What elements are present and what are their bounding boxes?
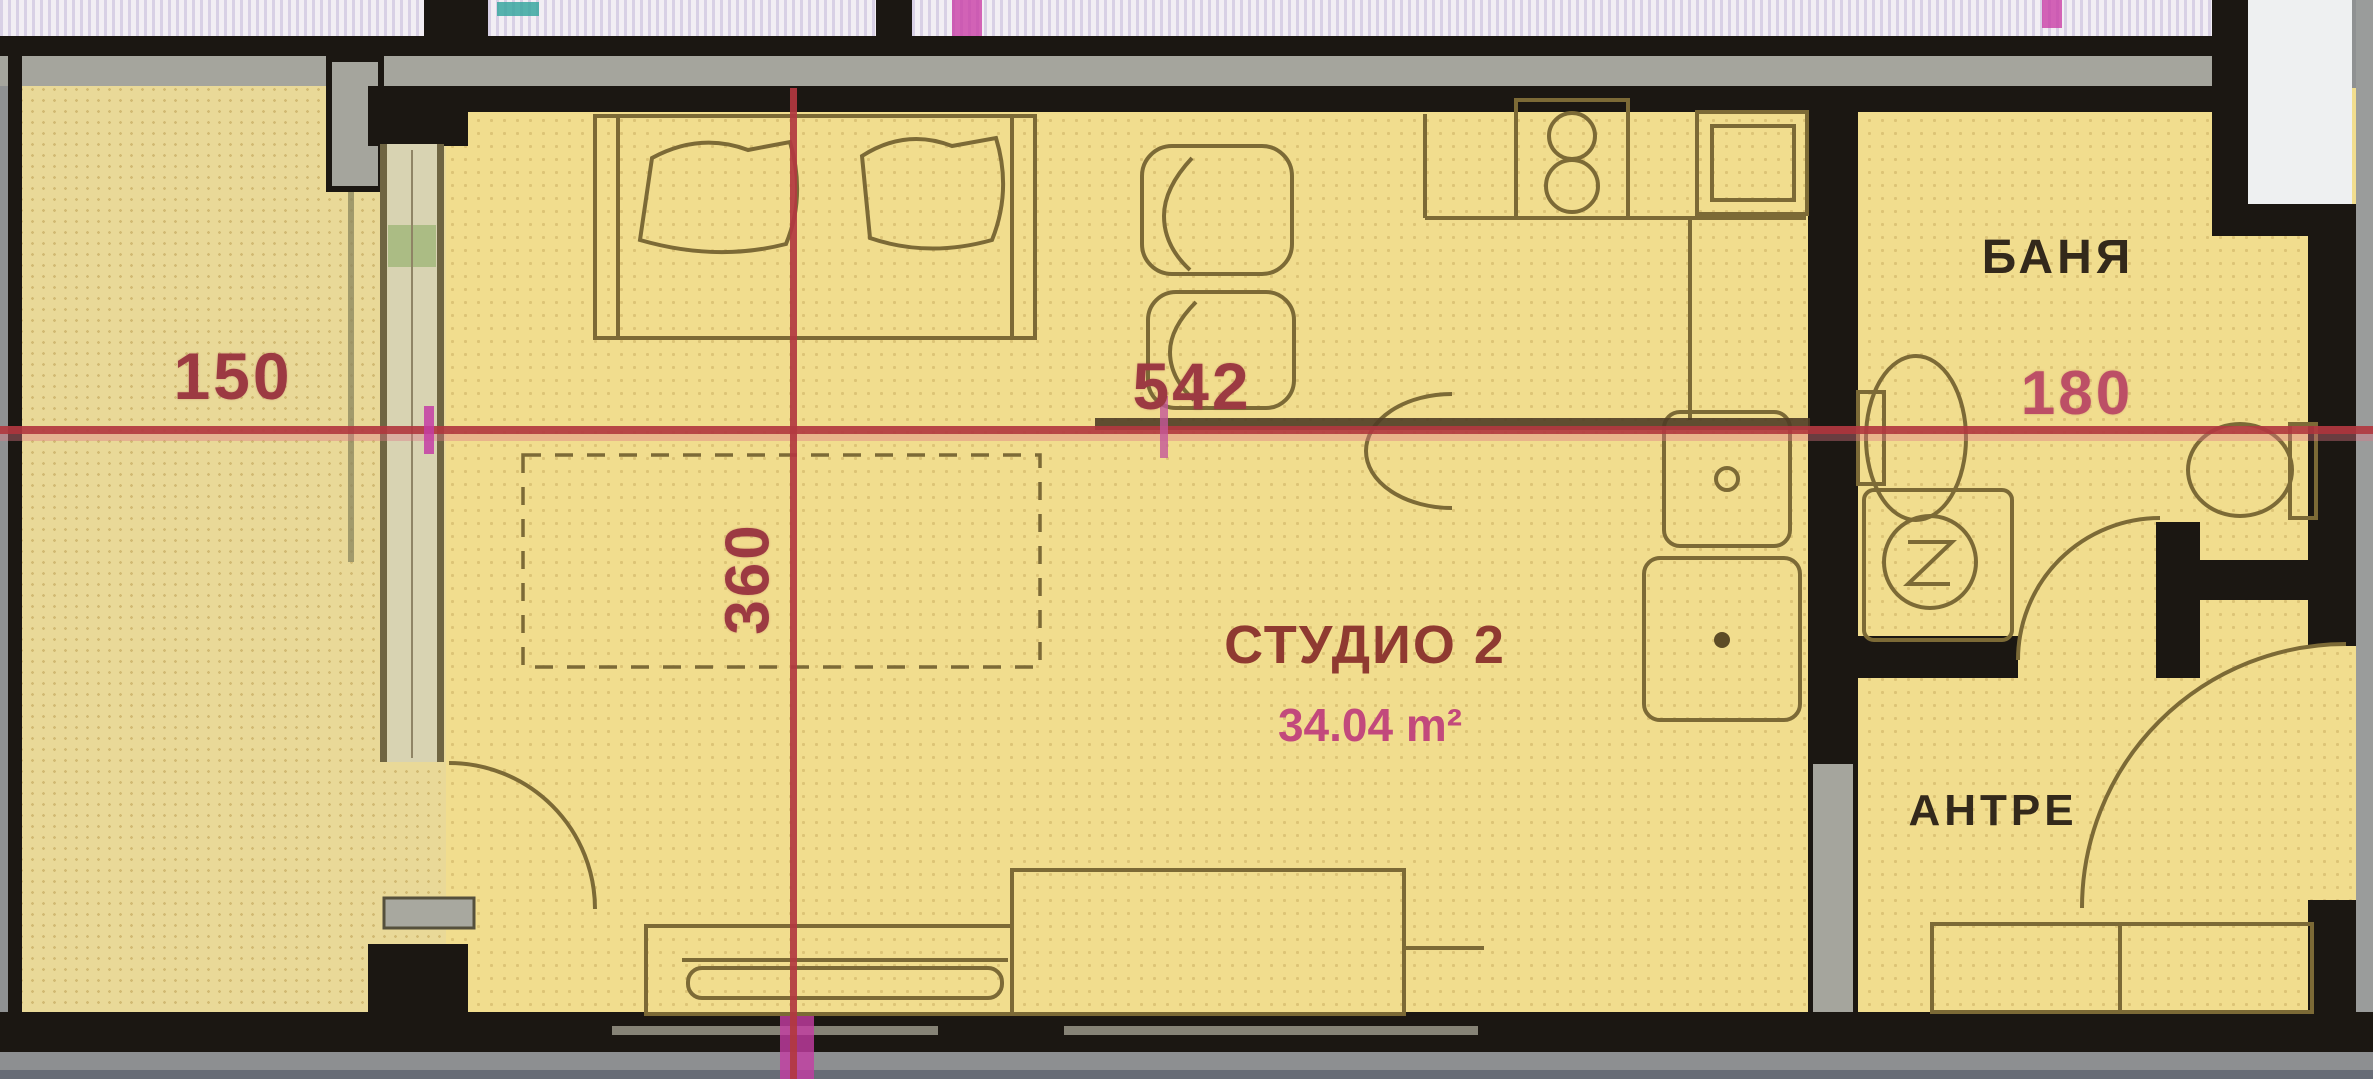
- dimension-line-horizontal-glow: [0, 434, 2373, 441]
- pillow-left: [640, 142, 797, 252]
- bar-counter-round-end: [1366, 394, 1452, 508]
- kitchen-sink: [1697, 112, 1807, 214]
- pillow-right: [862, 138, 1003, 249]
- bathroom-door-swing: [2018, 518, 2160, 660]
- terrace-door: [384, 763, 595, 928]
- dimension-studio-width: 542: [1082, 348, 1302, 424]
- unit-area-label: 34.04 m²: [1250, 698, 1490, 752]
- dimension-bathroom-width: 180: [1992, 358, 2162, 429]
- floor-plan: 150 542 360 180 БАНЯ АНТРЕ СТУДИО 2 34.0…: [0, 0, 2373, 1079]
- kitchen-counter: [1425, 114, 1806, 420]
- double-bed: [595, 116, 1035, 338]
- kitchen-appliance-lower: [1644, 558, 1800, 720]
- sofa: [1012, 870, 1484, 1014]
- furniture-linework: [0, 0, 2373, 1079]
- tv-bench: [646, 926, 1012, 1014]
- cooktop: [1516, 100, 1628, 218]
- bathroom-label: БАНЯ: [1948, 230, 2168, 285]
- dimension-terrace-width: 150: [128, 338, 338, 414]
- hall-cabinet: [1932, 924, 2312, 1012]
- unit-name-label: СТУДИО 2: [1200, 614, 1530, 676]
- dimension-studio-depth: 360: [688, 468, 808, 688]
- hall-label: АНТРЕ: [1888, 786, 2098, 836]
- entrance-door-swing: [2082, 644, 2346, 908]
- dimension-tick-window: [424, 406, 434, 454]
